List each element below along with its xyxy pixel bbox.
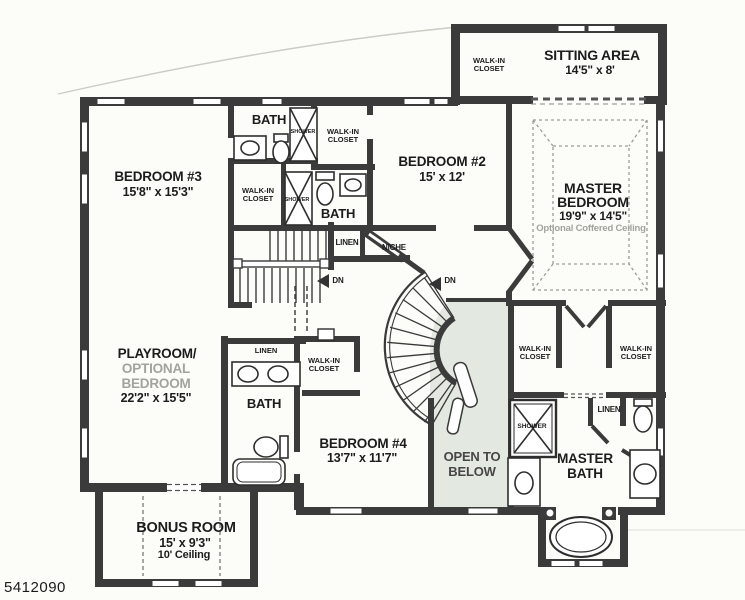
floor-plan-drawing [0,0,745,600]
bonus-room-dims: 15' x 9'3" [159,537,211,550]
bedroom2-label: BEDROOM #2 [398,155,485,169]
playroom-label-2: OPTIONAL [122,362,190,376]
linen-stairs-label: LINEN [335,239,358,247]
floor-plan: BEDROOM #3 15'8" x 15'3" BATH SHOWER WAL… [0,0,745,600]
bonus-room-note: 10' Ceiling [158,550,210,561]
sink-icon [340,174,366,196]
double-vanity-icon [232,362,300,386]
linen-master-label: LINEN [597,406,620,414]
toilet-icon [254,436,288,458]
walkin-closet-b2-line2: CLOSET [328,136,358,144]
bedroom3-label: BEDROOM #3 [114,170,201,184]
open-to-below-label-1: OPEN TO [444,450,501,463]
walkin-closet-r2-line2: CLOSET [621,353,651,361]
closet-stub [318,329,334,340]
sitting-area-label: SITTING AREA [544,48,640,62]
dn-arrow-straight-icon [317,274,329,288]
master-bath-label-2: BATH [567,467,603,481]
niche-label: NICHE [382,244,406,252]
walkin-closet-b4-line2: CLOSET [309,365,339,373]
dashed-details [143,99,648,576]
bedroom4-label: BEDROOM #4 [319,437,406,451]
bedroom2-dims: 15' x 12' [419,171,465,184]
toilet-icon [273,134,289,163]
bonus-room-label: BONUS ROOM [136,521,236,536]
plan-number: 5412090 [4,579,66,596]
playroom-label-3: BEDROOM [121,377,190,391]
dn-label-straight: DN [332,277,343,285]
dn-label-curved: DN [444,277,455,285]
master-bedroom-label-1: MASTER [564,181,622,195]
shower2-label: SHOWER [285,198,310,204]
bath3-label: BATH [247,397,281,410]
stairs-straight [233,228,329,303]
walkin-closet-r1-line2: CLOSET [520,353,550,361]
shower1-label: SHOWER [291,130,316,136]
toilet-icon [634,399,652,432]
bath1-label: BATH [252,113,286,126]
playroom-dims: 22'2" x 15'5" [121,392,192,405]
shower-master-label: SHOWER [517,424,546,431]
linen-centerbath-label: LINEN [255,347,278,355]
master-bedroom-label-2: BEDROOM [557,195,629,209]
walls [80,24,667,587]
vanity-icon [508,458,540,506]
master-bath-label-1: MASTER [557,452,613,466]
toilet-icon [316,172,334,205]
walkin-closet-sitting-line2: CLOSET [474,65,504,73]
bedroom4-dims: 13'7" x 11'7" [327,452,397,465]
vanity-icon [630,450,660,498]
bath2-label: BATH [321,207,355,220]
walkin-closet-b3-line2: CLOSET [243,195,273,203]
playroom-label-1: PLAYROOM/ [118,347,197,361]
master-bedroom-dims: 19'9" x 14'5" [559,210,627,222]
tub-icon [233,459,285,485]
scan-artifact-curve [58,27,458,94]
sink-icon [234,136,266,160]
bedroom3-dims: 15'8" x 15'3" [123,186,194,199]
sitting-area-dims: 14'5" x 8' [565,64,614,76]
soaking-tub-icon [550,517,612,557]
open-to-below-label-2: BELOW [448,465,495,478]
master-bedroom-note: Optional Coffered Ceiling [536,224,646,234]
